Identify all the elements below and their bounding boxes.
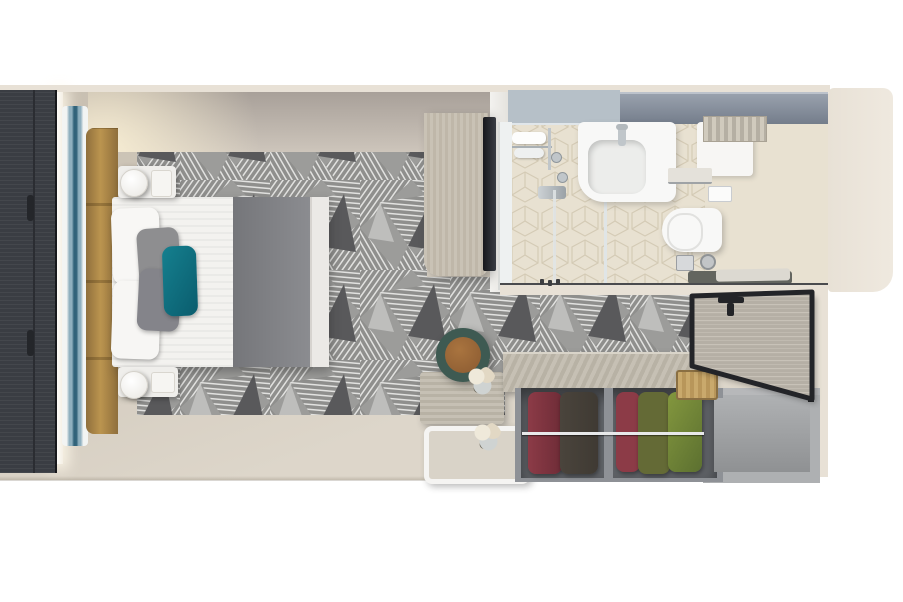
bathroom-cabinet: [508, 90, 620, 125]
bed-runner: [233, 197, 310, 367]
shower-glass: [553, 190, 556, 285]
storage-basket: [676, 370, 718, 400]
washbasin: [588, 140, 646, 194]
wall-block-top-right: [828, 88, 893, 292]
table-lamp: [120, 371, 148, 399]
flower-vase: [466, 366, 496, 396]
closet-rail: [522, 432, 704, 435]
panel-handle: [27, 195, 34, 221]
wall-top: [0, 85, 830, 92]
stateroom-floorplan: [0, 0, 903, 602]
flower-vase: [472, 422, 502, 452]
towel-hook: [540, 279, 544, 285]
shower-fixture: [538, 186, 566, 199]
bath-mat-towel: [716, 268, 790, 281]
shower-valve: [557, 172, 568, 183]
bathroom-glass-door: [498, 122, 512, 290]
marble-art-strip: [62, 106, 88, 446]
vanity-desk: [424, 113, 488, 276]
towel-rail: [668, 168, 712, 184]
door-jamb: [808, 292, 814, 402]
nightstand-decor: [151, 372, 175, 393]
toilet-paper-holder: [676, 255, 694, 271]
luggage-nook-floor: [714, 398, 810, 472]
vent-shelf: [703, 116, 767, 142]
desk-mirror: [483, 117, 496, 271]
flush-plate: [708, 186, 732, 202]
shower-towel: [512, 132, 546, 144]
wardrobe-wall-panel: [0, 90, 57, 473]
towel-hook: [556, 279, 560, 285]
panel-handle: [27, 330, 34, 356]
nightstand-decor: [151, 170, 172, 197]
shower-shelf: [510, 146, 552, 148]
shower-valve: [551, 152, 562, 163]
shower-towel: [514, 148, 544, 158]
table-lamp: [120, 169, 148, 197]
faucet-spout: [616, 124, 628, 130]
floor-drain: [700, 254, 716, 270]
towel-hook: [548, 280, 552, 286]
pillow-teal-accent: [162, 245, 198, 316]
shower-bar: [548, 128, 551, 170]
panel-seam: [33, 90, 35, 473]
bed-duvet-fold: [310, 197, 329, 367]
toilet-seat: [667, 213, 703, 251]
